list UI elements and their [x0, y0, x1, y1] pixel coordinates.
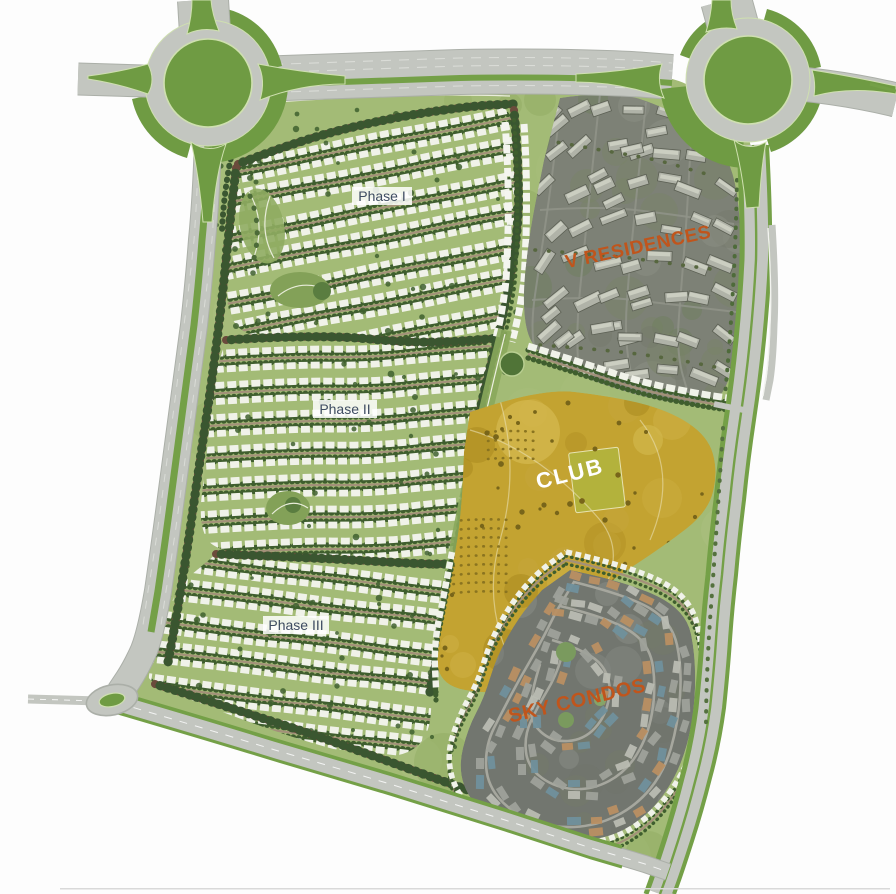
- svg-text:Phase I: Phase I: [358, 188, 405, 204]
- svg-text:Phase II: Phase II: [319, 401, 370, 417]
- svg-text:Phase III: Phase III: [268, 617, 323, 633]
